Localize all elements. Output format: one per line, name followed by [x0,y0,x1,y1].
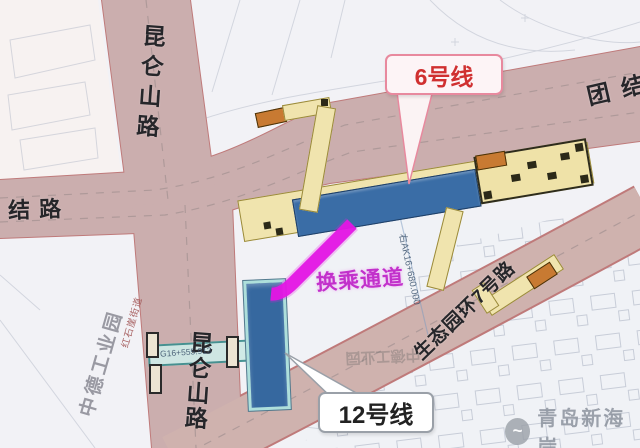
watermark: ~ 青岛新海岸 [505,402,640,448]
station-plan-map: 昆仑山路 昆仑山路 结路 团结 生态园环7号路 中德工业园 红石崖街道 右AK1… [0,0,640,448]
line6-callout: 6号线 [385,54,503,95]
line12-callout: 12号线 [318,392,434,433]
transfer-passage-label: 换乘通道 [315,261,405,297]
watermark-logo-icon: ~ [505,418,530,445]
line6-callout-tail [397,90,433,184]
line6-callout-text: 6号线 [415,58,474,92]
background-upside-label: 中德工业园 [345,345,421,370]
watermark-text: 青岛新海岸 [537,402,640,448]
line12-callout-text: 12号线 [339,395,414,430]
road-label-tuanjie-left: 结路 [7,191,70,225]
